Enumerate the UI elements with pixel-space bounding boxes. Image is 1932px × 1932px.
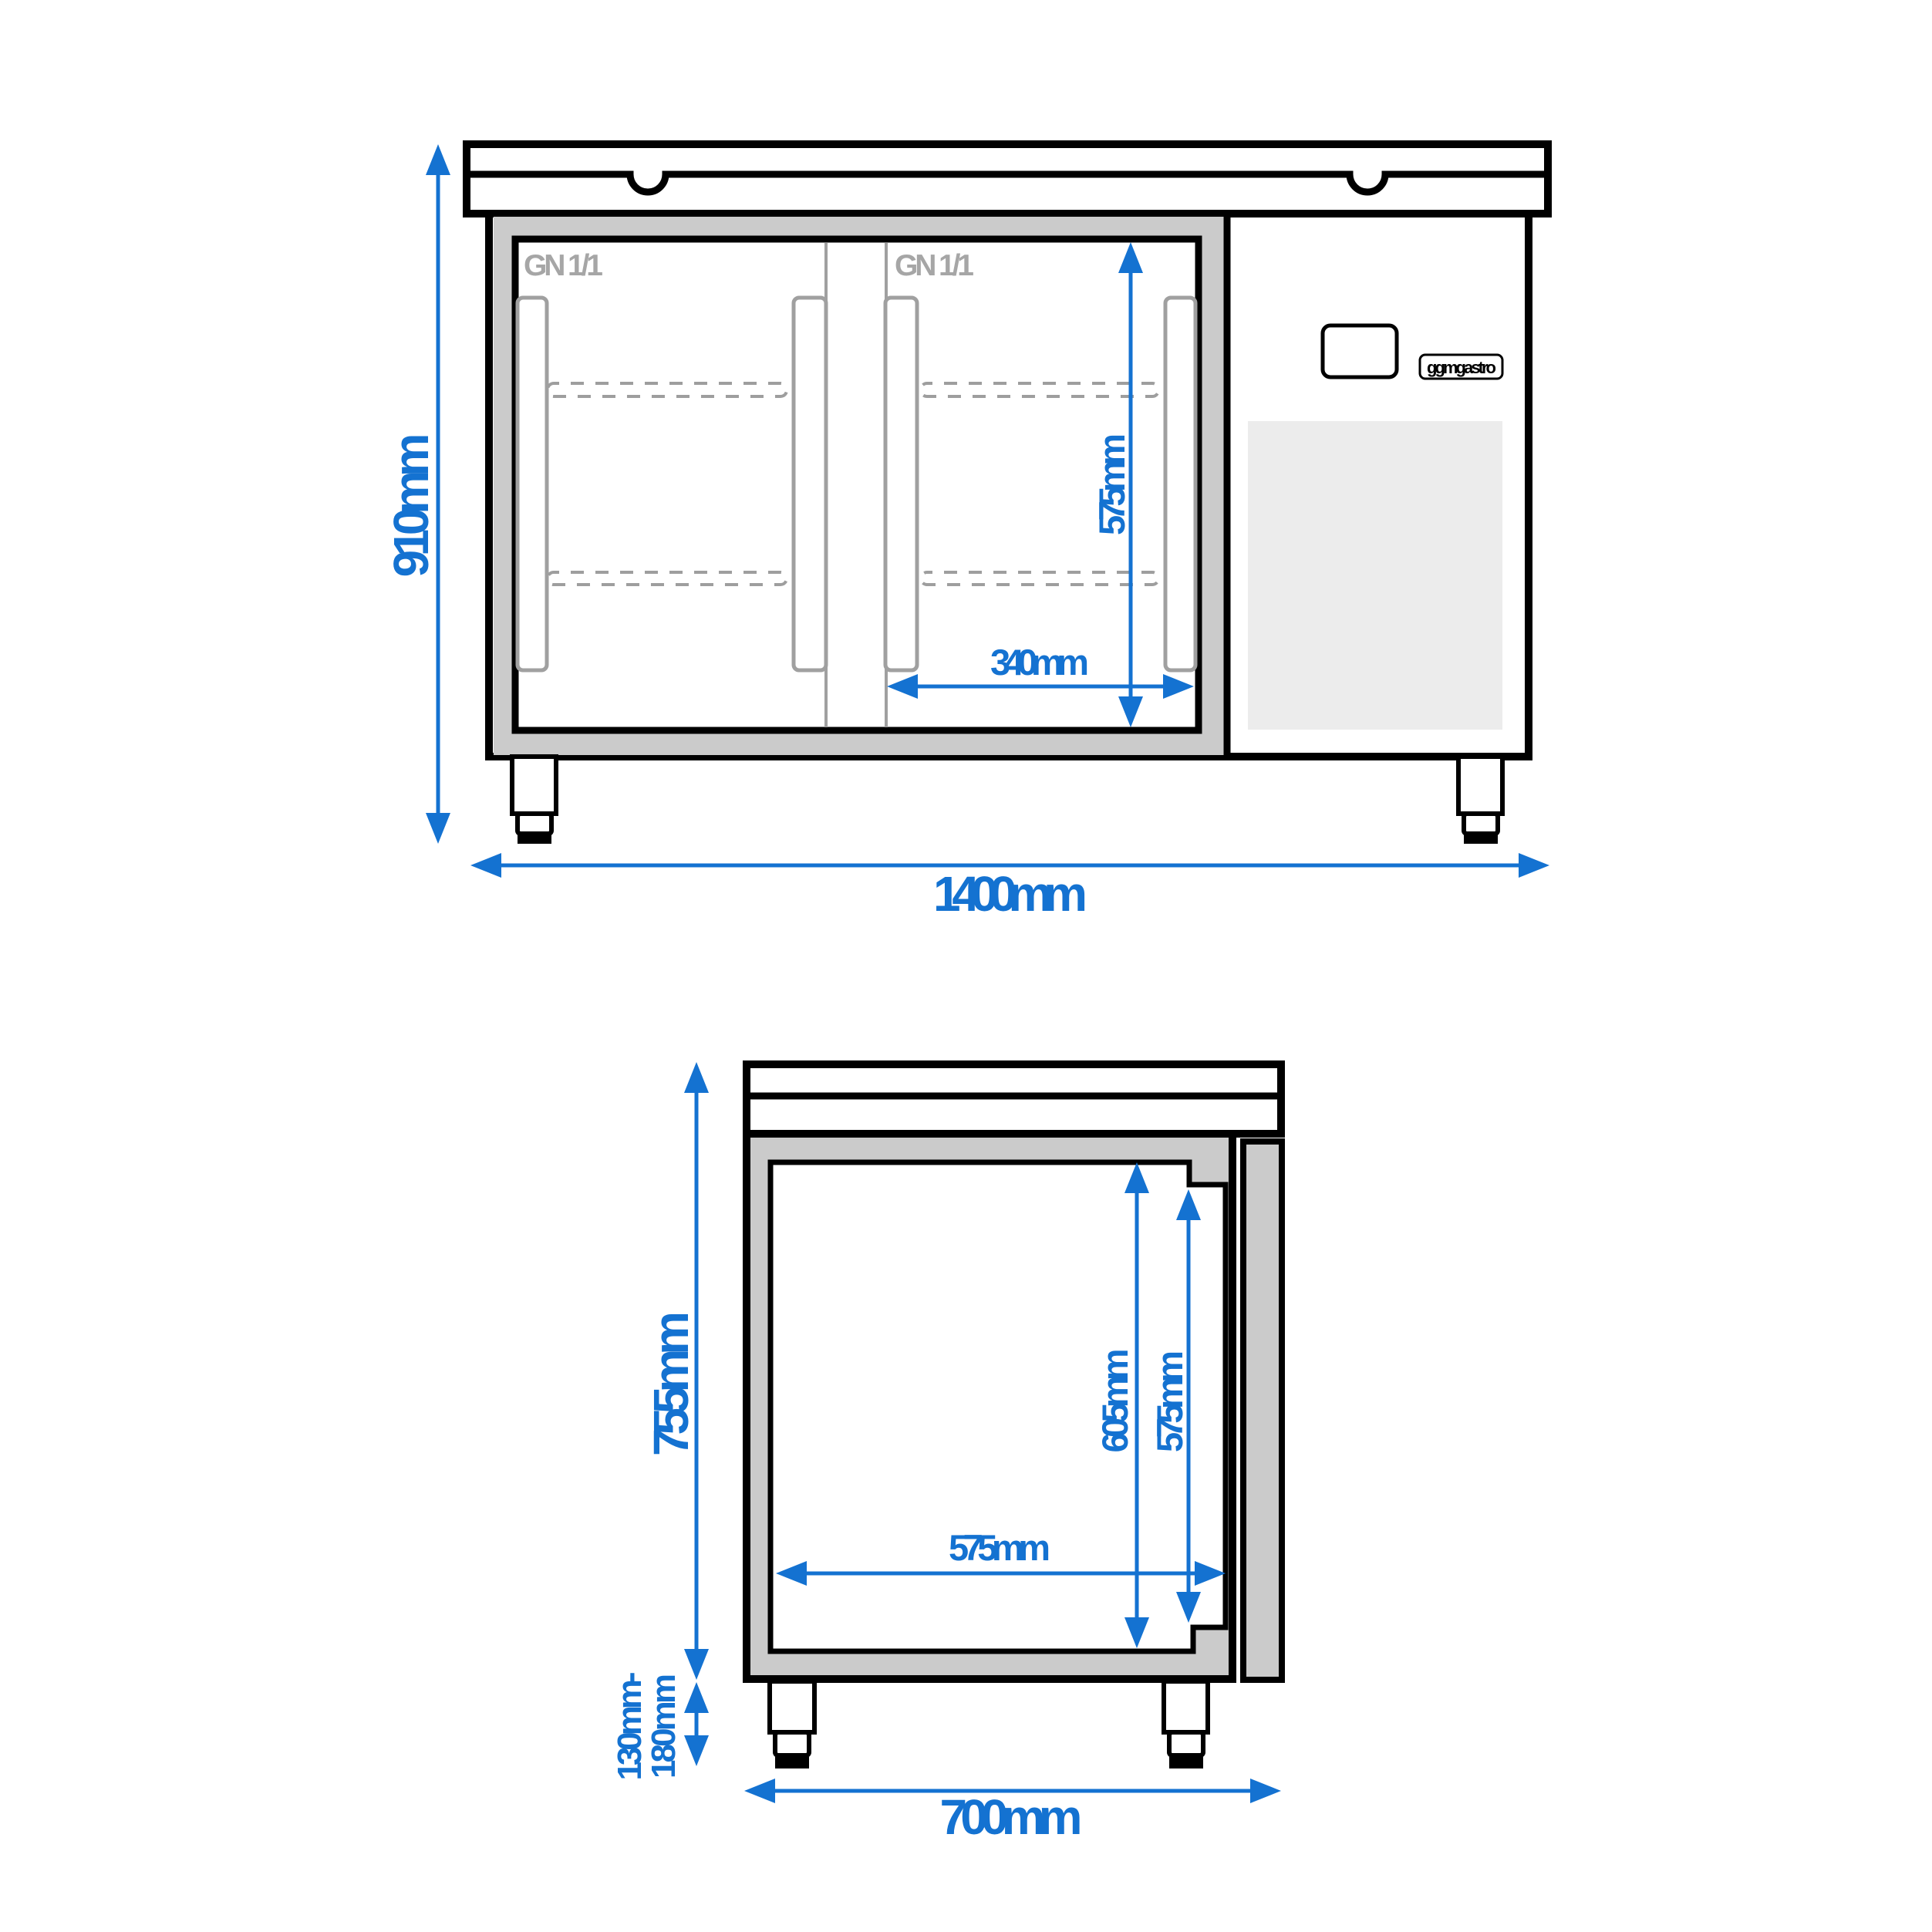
svg-text:ggmgastro: ggmgastro: [1427, 358, 1496, 377]
svg-text:910mm: 910mm: [383, 433, 439, 578]
svg-text:755mm: 755mm: [643, 1311, 699, 1456]
svg-text:GN 1/1: GN 1/1: [895, 249, 974, 282]
svg-text:700mm: 700mm: [940, 1789, 1083, 1845]
svg-text:180mm: 180mm: [645, 1674, 683, 1779]
svg-text:GN 1/1: GN 1/1: [524, 249, 603, 282]
svg-text:605mm: 605mm: [1094, 1349, 1135, 1453]
svg-text:575mm: 575mm: [1149, 1350, 1190, 1452]
svg-text:575mm: 575mm: [1091, 433, 1132, 535]
svg-text:340mm: 340mm: [990, 642, 1089, 683]
svg-text:130mm-: 130mm-: [611, 1672, 649, 1781]
svg-text:1400mm: 1400mm: [933, 866, 1087, 922]
svg-text:575mm: 575mm: [949, 1527, 1050, 1568]
